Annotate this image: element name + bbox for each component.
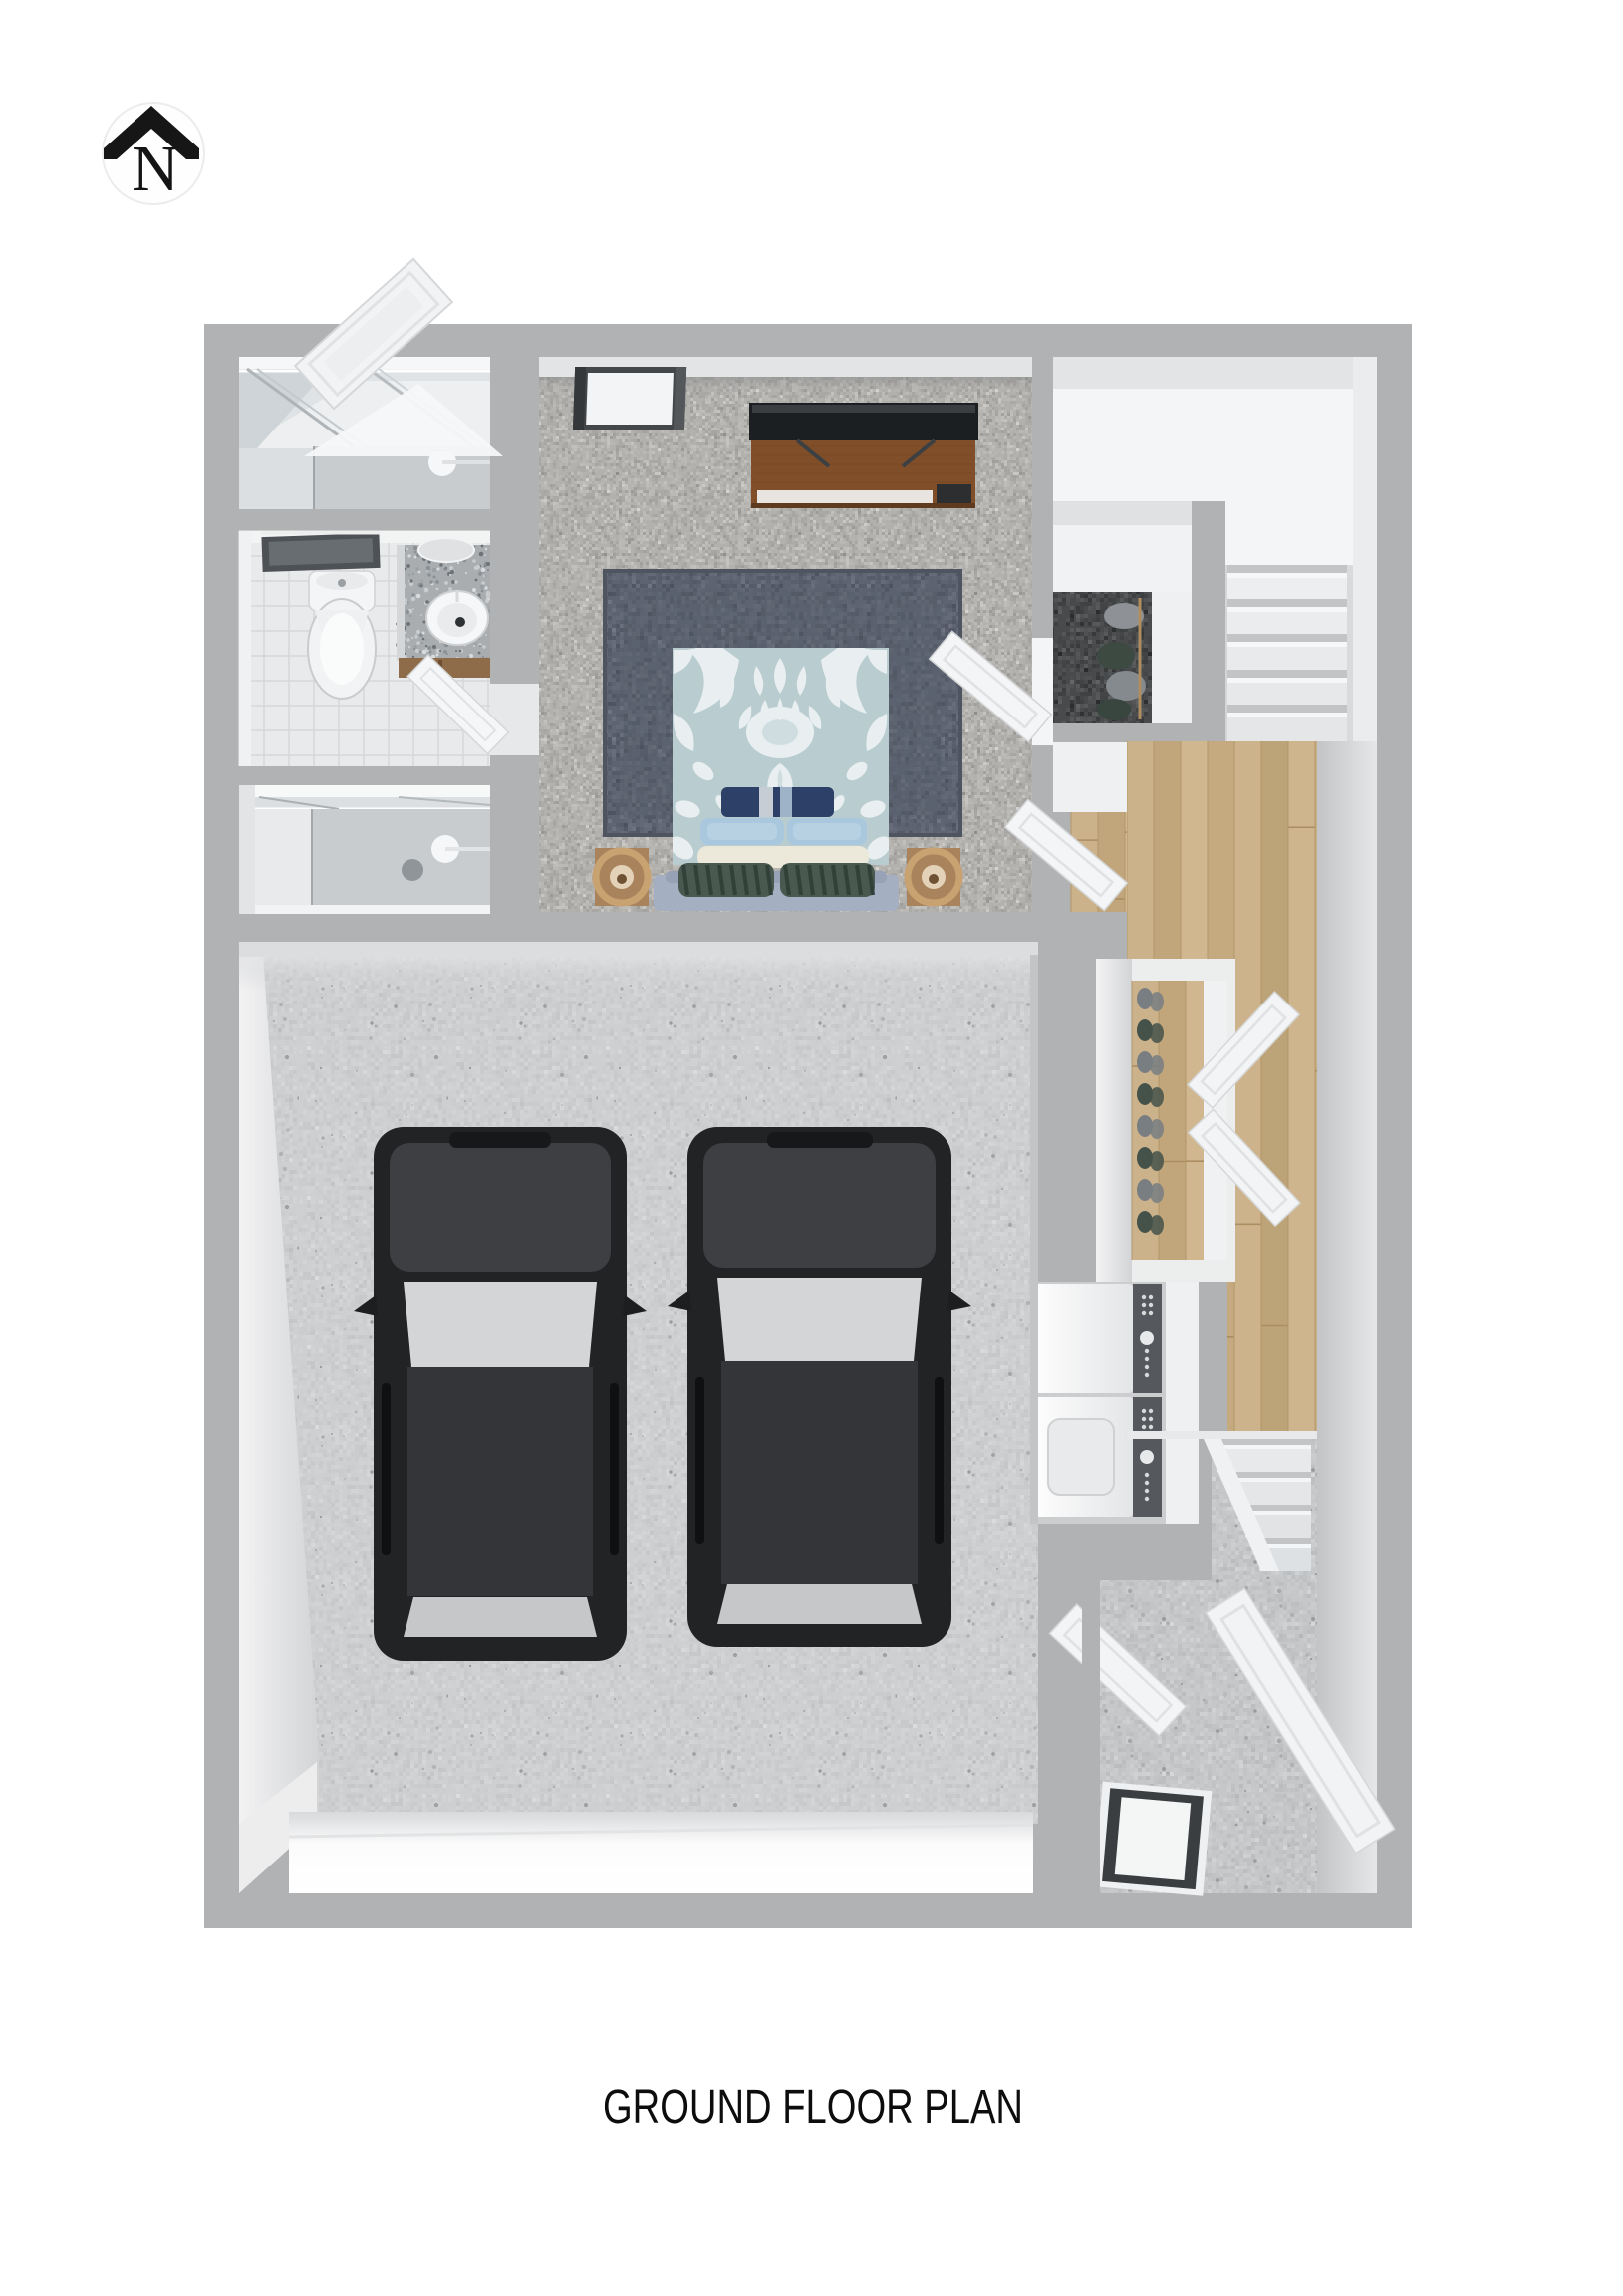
- svg-text:N: N: [132, 133, 179, 205]
- svg-text:GROUND FLOOR PLAN: GROUND FLOOR PLAN: [603, 2081, 1023, 2134]
